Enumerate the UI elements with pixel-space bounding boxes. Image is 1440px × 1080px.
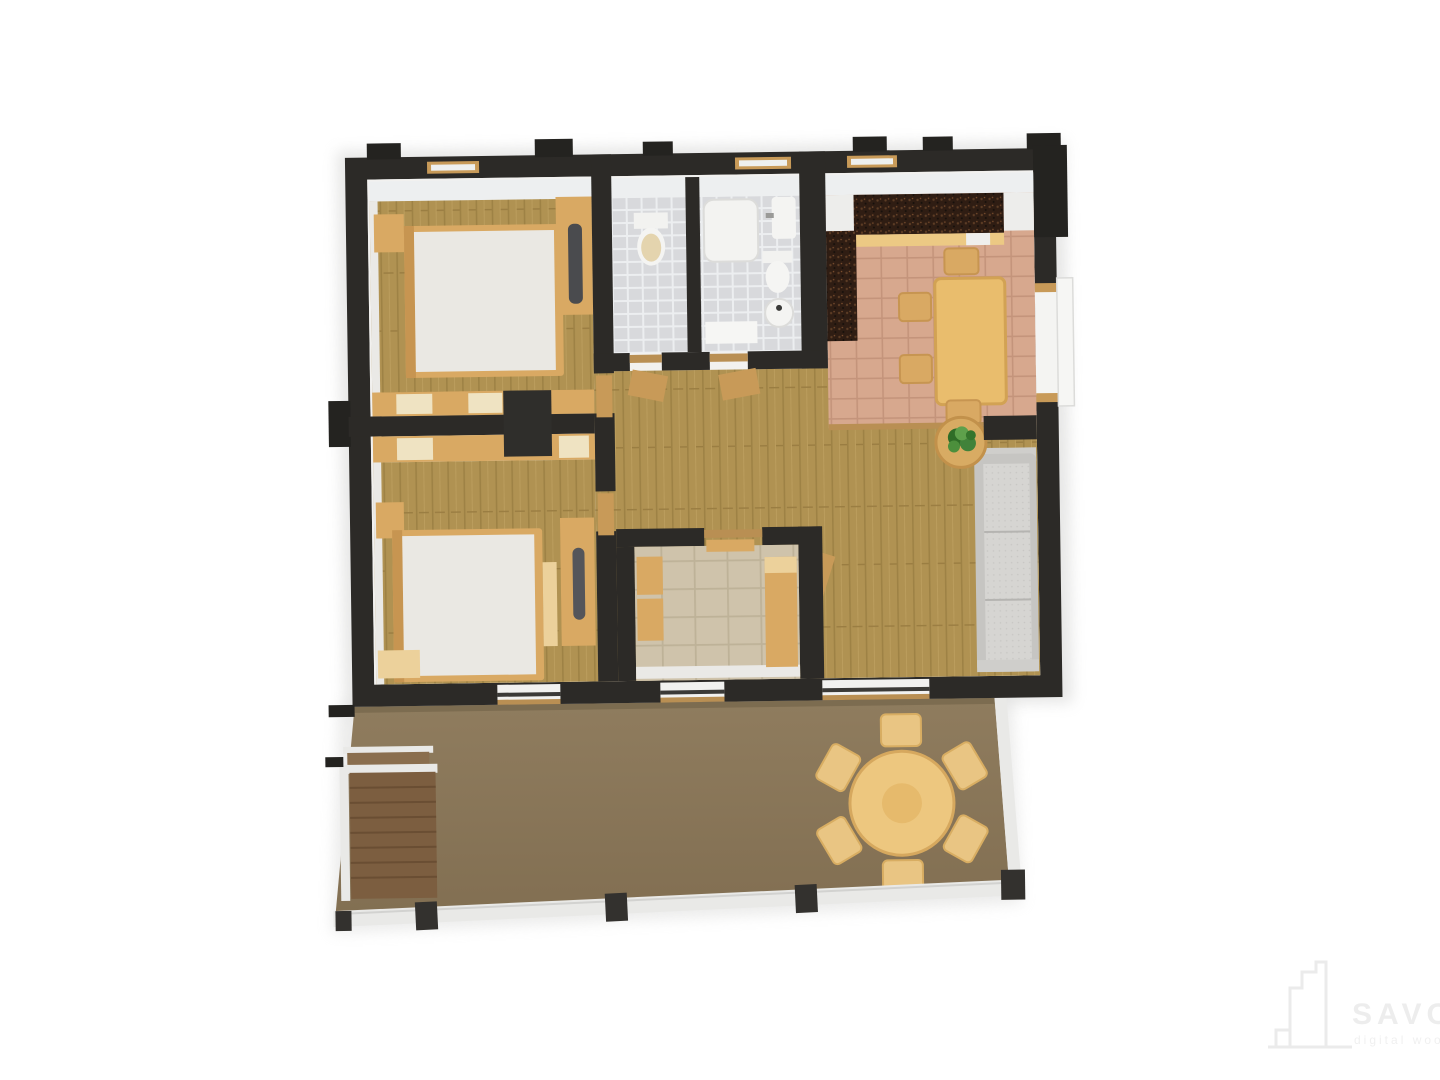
bench-pillow [765, 557, 797, 573]
door-opening [1035, 290, 1058, 395]
railing-post [335, 911, 351, 931]
bedroom-divider-wall [349, 413, 595, 436]
terrace [325, 698, 1026, 932]
fridge [825, 195, 855, 231]
railing-corner-post [1001, 869, 1025, 899]
bath-mat [705, 321, 757, 344]
dining-chair [944, 248, 978, 274]
bedroom1-open-door [596, 375, 613, 417]
corner-block [1033, 145, 1068, 237]
wood-stairs [349, 772, 437, 899]
closet-door [468, 393, 502, 413]
bedroom-2 [348, 389, 598, 684]
window-glass [739, 160, 787, 167]
scene [317, 132, 1082, 933]
shower-tub [704, 199, 759, 262]
bathroom [699, 176, 801, 352]
logo-tower [1290, 962, 1326, 1046]
wardrobe-door [559, 436, 589, 458]
bedroom-1 [369, 178, 594, 416]
window-glass [851, 158, 893, 165]
wall-stub [853, 136, 887, 151]
small-room-wall-left [616, 547, 636, 681]
dining-chair [900, 355, 932, 383]
wall-face [611, 177, 685, 198]
railing-post [795, 884, 818, 913]
wall-hall-left-lower [596, 531, 618, 681]
faucet [766, 213, 774, 218]
bath-door-threshold [710, 353, 748, 362]
watermark-tagline: digital wood [1354, 1033, 1440, 1047]
door-threshold [660, 697, 724, 703]
toilet-cistern [634, 212, 668, 228]
sofa-seam [984, 531, 1030, 532]
wardrobe-door [397, 438, 433, 461]
wall-stub [535, 139, 573, 158]
round-basin [765, 299, 793, 327]
sofa-seam [985, 599, 1031, 600]
shelf [706, 539, 754, 552]
wall-bath-kitchen [799, 151, 828, 368]
nightstand [374, 214, 405, 252]
bathroom-sink [771, 197, 796, 239]
wall-bedroom1-right [591, 154, 614, 373]
window-glass [431, 164, 475, 171]
terrace-chair [881, 714, 921, 747]
watermark-brand: SAVODZ [1352, 998, 1440, 1031]
bed-side-bench [543, 562, 558, 646]
sofa-armrest-bottom [977, 659, 1039, 672]
wc-door-threshold [630, 355, 662, 363]
bed-headboard [404, 226, 416, 378]
kitchen-dining [825, 172, 1037, 430]
wall-stub [367, 143, 401, 159]
floor-plan-render: SAVODZ digital wood [0, 0, 1440, 1080]
small-room-wall-top-left [616, 528, 704, 547]
railing-post [415, 901, 438, 930]
wall-segment [662, 352, 710, 371]
wall-stub [643, 141, 673, 155]
dishwasher-front [966, 233, 990, 245]
low-cabinet [378, 650, 420, 679]
wall-stub-bottom-left [329, 705, 355, 717]
wall-wc-bath [685, 177, 701, 352]
door-jamb [1036, 393, 1058, 402]
floor-plan-canvas: SAVODZ digital wood [0, 0, 1440, 1080]
watermark: SAVODZ digital wood [1268, 962, 1440, 1047]
wall-kitchen-living [984, 415, 1037, 440]
cabinet [637, 599, 664, 641]
bench-bed [765, 557, 799, 667]
wardrobe-mirror [568, 224, 583, 304]
wall-segment [594, 353, 630, 372]
counter-end-cabinet [1003, 192, 1034, 230]
stairs-left-rail [339, 765, 350, 901]
wall-face [825, 172, 1033, 195]
dark-wardrobe-block [503, 390, 552, 457]
bedroom2-open-door [598, 493, 615, 535]
wall-stub-left [328, 401, 351, 447]
tv-on-desk [572, 548, 585, 620]
closet-door [396, 394, 432, 415]
small-room-wall-right [798, 526, 824, 678]
cabinet [637, 557, 664, 595]
dining-chair [899, 293, 931, 321]
counter-left [826, 231, 858, 341]
wc [611, 177, 687, 353]
small-room-threshold [704, 529, 762, 538]
kitchen-side-door [1035, 278, 1075, 407]
logo-low-block [1276, 1030, 1290, 1046]
stair-step-mark [325, 757, 343, 767]
door-jamb [1035, 283, 1057, 292]
outside-landing [1057, 278, 1075, 406]
sofa-cushions [983, 463, 1032, 664]
building-logo-icon [1268, 962, 1352, 1047]
bed-mattress-2 [402, 534, 536, 676]
wall-face [699, 176, 799, 197]
wall-stub [923, 136, 953, 150]
door-threshold [497, 699, 560, 705]
bed-mattress [414, 230, 556, 372]
dining-table [935, 278, 1007, 405]
railing-post [605, 893, 628, 922]
counter-top [853, 193, 1004, 235]
stairs-landing [347, 752, 429, 766]
wall-hall-left-upper [595, 413, 616, 491]
wall-segment [748, 350, 828, 369]
small-room [616, 526, 824, 681]
